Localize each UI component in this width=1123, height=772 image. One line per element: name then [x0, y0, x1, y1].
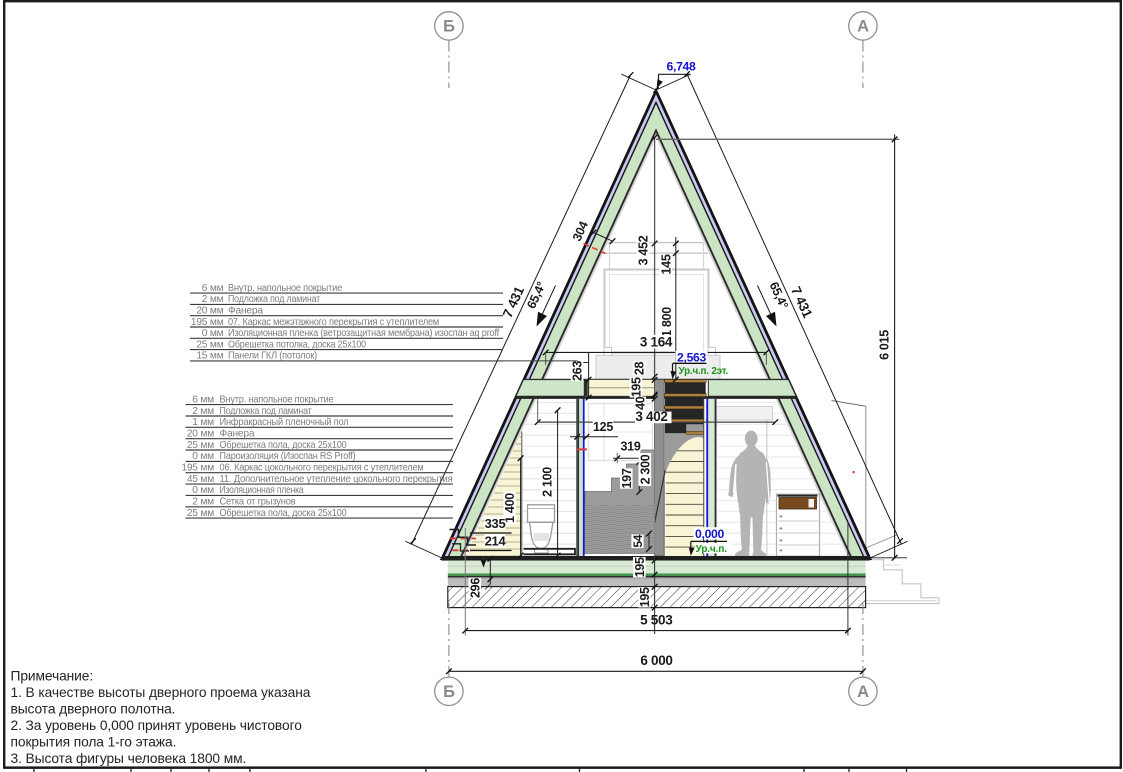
svg-text:3. Высота фигуры человека 1800: 3. Высота фигуры человека 1800 мм. — [11, 751, 247, 766]
svg-text:2. За уровень 0,000 принят уро: 2. За уровень 0,000 принят уровень чисто… — [11, 718, 303, 733]
svg-text:28: 28 — [633, 362, 647, 376]
svg-text:высота дверного полотна.: высота дверного полотна. — [11, 701, 176, 716]
svg-text:Сетка от грызунов: Сетка от грызунов — [220, 497, 296, 508]
svg-text:2 300: 2 300 — [638, 454, 652, 484]
svg-text:214: 214 — [485, 534, 507, 549]
svg-text:Панели ГКЛ (потолок): Панели ГКЛ (потолок) — [228, 351, 317, 362]
svg-text:покрытия пола 1-го этажа.: покрытия пола 1-го этажа. — [11, 734, 177, 749]
svg-text:Пароизоляция (Изоспан RS Proff: Пароизоляция (Изоспан RS Proff) — [220, 451, 356, 462]
svg-text:20 мм: 20 мм — [196, 306, 223, 317]
svg-text:Фанера: Фанера — [228, 306, 263, 317]
svg-text:Б: Б — [443, 18, 455, 36]
svg-text:Фанера: Фанера — [220, 429, 255, 440]
svg-text:0 мм: 0 мм — [192, 451, 214, 462]
svg-text:6 015: 6 015 — [878, 330, 892, 360]
svg-text:0,000: 0,000 — [695, 527, 725, 541]
svg-text:Обрешетка пола, доска 25х100: Обрешетка пола, доска 25х100 — [220, 439, 347, 451]
svg-text:11. Дополнительное утепление ц: 11. Дополнительное утепление цокольного … — [220, 474, 453, 485]
svg-text:335: 335 — [485, 516, 506, 531]
svg-text:0 мм: 0 мм — [202, 328, 224, 339]
svg-text:Изоляционная пленка (ветрозащи: Изоляционная пленка (ветрозащитная мембр… — [228, 327, 499, 339]
svg-text:45 мм: 45 мм — [187, 474, 214, 485]
svg-text:6 мм: 6 мм — [192, 394, 214, 405]
svg-text:Обрешетка пола, доска 25х100: Обрешетка пола, доска 25х100 — [220, 507, 347, 519]
svg-text:Ур.ч.п.: Ур.ч.п. — [696, 544, 728, 555]
svg-text:125: 125 — [593, 420, 613, 434]
svg-text:А: А — [857, 683, 869, 701]
svg-text:195: 195 — [633, 557, 647, 577]
svg-text:15 мм: 15 мм — [196, 351, 223, 362]
svg-text:1. В качестве высоты дверного: 1. В качестве высоты дверного проема ука… — [11, 685, 311, 700]
svg-text:3 164: 3 164 — [640, 335, 673, 350]
svg-text:Обрешетка потолка, доска 25х10: Обрешетка потолка, доска 25х100 — [228, 338, 366, 350]
svg-text:3 452: 3 452 — [636, 235, 650, 265]
svg-text:319: 319 — [621, 439, 641, 453]
svg-text:3 402: 3 402 — [635, 409, 667, 424]
svg-text:2 100: 2 100 — [540, 467, 554, 497]
svg-text:0 мм: 0 мм — [192, 485, 214, 496]
svg-text:195 мм: 195 мм — [181, 463, 214, 474]
svg-text:06. Каркас цокольного перекрыт: 06. Каркас цокольного перекрытия с утепл… — [220, 463, 424, 474]
svg-text:5 503: 5 503 — [640, 613, 673, 628]
svg-text:1 мм: 1 мм — [192, 417, 214, 428]
svg-text:Б: Б — [443, 683, 455, 701]
svg-text:Инфракрасный пленочный пол: Инфракрасный пленочный пол — [220, 416, 349, 428]
svg-text:195: 195 — [638, 587, 652, 607]
svg-text:6,748: 6,748 — [667, 60, 697, 74]
svg-text:197: 197 — [620, 468, 634, 488]
svg-text:54: 54 — [631, 534, 645, 547]
svg-text:2 мм: 2 мм — [192, 497, 214, 508]
svg-text:Внутр. напольное покрытие: Внутр. напольное покрытие — [220, 394, 334, 405]
svg-text:25 мм: 25 мм — [187, 440, 214, 451]
svg-text:Изоляционная пленка: Изоляционная пленка — [220, 485, 304, 496]
svg-text:296: 296 — [468, 578, 482, 598]
svg-text:Внутр. напольное покрытие: Внутр. напольное покрытие — [228, 283, 342, 294]
svg-text:25 мм: 25 мм — [196, 339, 223, 350]
svg-text:А: А — [857, 18, 869, 36]
svg-text:Подложка под ламинат: Подложка под ламинат — [228, 294, 320, 305]
svg-text:2 мм: 2 мм — [202, 294, 224, 305]
svg-text:6 000: 6 000 — [640, 653, 672, 668]
svg-text:1 800: 1 800 — [660, 307, 674, 337]
svg-text:195: 195 — [629, 377, 643, 397]
svg-text:20 мм: 20 мм — [187, 429, 214, 440]
svg-text:2 мм: 2 мм — [192, 406, 214, 417]
svg-text:Примечание:: Примечание: — [11, 669, 94, 684]
svg-text:263: 263 — [571, 361, 585, 381]
svg-text:07. Каркас межэтажного перекры: 07. Каркас межэтажного перекрытия с утеп… — [228, 317, 439, 328]
svg-text:Ур.ч.п. 2эт.: Ур.ч.п. 2эт. — [679, 366, 729, 377]
svg-text:Подложка под ламинат: Подложка под ламинат — [220, 406, 312, 417]
svg-text:25 мм: 25 мм — [187, 508, 214, 519]
svg-text:40: 40 — [634, 396, 648, 410]
svg-text:6 мм: 6 мм — [202, 283, 224, 294]
svg-text:195 мм: 195 мм — [191, 317, 224, 328]
svg-text:2,563: 2,563 — [677, 351, 707, 365]
svg-text:145: 145 — [659, 254, 673, 274]
